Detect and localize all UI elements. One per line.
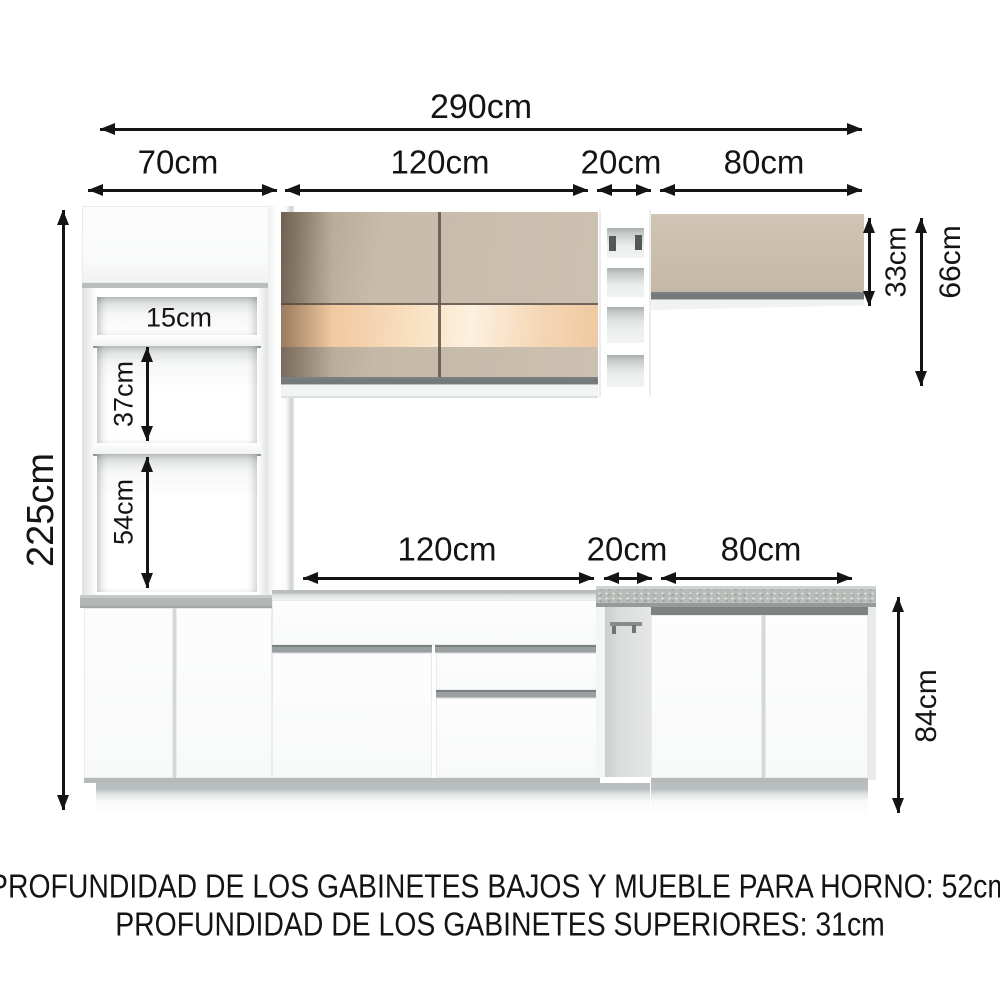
dim-arrow-20-top	[597, 189, 651, 192]
dim-label-80-top: 80cm	[724, 146, 805, 179]
base-open-gap-20	[605, 605, 651, 777]
wall-cabinet-80-handle-strip	[651, 292, 864, 300]
wall-cabinet-80	[651, 214, 864, 310]
base-right-door-2	[765, 615, 868, 778]
wall-cabinet-120-left-shadow	[281, 212, 333, 377]
wall-cabinet-80-bottom-slab	[651, 300, 864, 310]
base-left-door-gap	[173, 608, 176, 778]
dim-arrow-20-mid	[604, 577, 652, 580]
base-mid	[272, 600, 600, 783]
dim-label-54: 54cm	[111, 479, 138, 545]
dim-label-20-top: 20cm	[581, 146, 662, 179]
base-mid-handle-strip-1	[272, 645, 600, 653]
upper-shelf-tower-20	[599, 210, 651, 397]
dim-arrow-120-mid	[303, 577, 594, 580]
towel-hook-left-icon	[612, 626, 616, 634]
dim-label-120-top: 120cm	[390, 146, 489, 179]
base-mid-handle-strip-2	[436, 690, 600, 698]
wall-cabinet-120-handle-strip	[281, 377, 598, 385]
kitchen-dimension-diagram: 290cm 70cm 120cm 20cm 80cm 225cm 15cm 37…	[0, 0, 1000, 1000]
dim-arrow-66	[920, 218, 923, 386]
tower-shelf-board-1	[93, 335, 261, 346]
base-mid-strip-gap	[432, 645, 435, 653]
dim-arrow-80-mid	[661, 577, 852, 580]
dim-arrow-total-width	[100, 128, 862, 131]
counter-mid	[272, 590, 600, 600]
base-right-side-face	[868, 607, 876, 780]
counter-left	[80, 595, 272, 608]
upper-shelf-opening-4	[607, 355, 644, 387]
base-right-door-gap	[762, 615, 765, 778]
dim-label-20-mid: 20cm	[587, 533, 668, 566]
dim-label-15: 15cm	[146, 305, 212, 332]
toe-kick-right	[651, 783, 868, 818]
hinge-left-icon	[609, 236, 616, 251]
upper-shelf-opening-2	[607, 268, 644, 297]
base-right	[651, 607, 868, 783]
dim-label-225: 225cm	[22, 453, 60, 567]
dim-label-total-width: 290cm	[430, 90, 532, 124]
dim-label-66: 66cm	[936, 225, 966, 298]
dim-arrow-70	[88, 189, 277, 192]
wall-cabinet-120-door-gap	[438, 212, 441, 377]
depth-note-base-cabinets: PROFUNDIDAD DE LOS GABINETES BAJOS Y MUE…	[0, 870, 1000, 903]
wall-cabinet-120-bottom-slab	[281, 385, 598, 398]
counter-right	[596, 586, 876, 607]
dim-label-37: 37cm	[111, 361, 138, 427]
dim-label-84: 84cm	[912, 669, 942, 742]
base-right-door-1	[651, 615, 762, 778]
dim-arrow-225	[62, 210, 65, 810]
tower-top-door-panel	[82, 206, 272, 283]
towel-hook-right-icon	[632, 625, 636, 633]
sink-front-panel	[272, 600, 600, 645]
dim-label-80-mid: 80cm	[721, 533, 802, 566]
hinge-right-icon	[635, 235, 642, 250]
wall-cabinet-120	[281, 212, 598, 398]
dim-arrow-120-top	[285, 189, 588, 192]
base-left	[84, 608, 272, 783]
base-gap-side-panel	[596, 605, 605, 777]
dim-label-70: 70cm	[138, 146, 219, 179]
dim-arrow-33	[868, 218, 871, 306]
dim-arrow-37	[146, 347, 149, 441]
dim-arrow-54	[146, 457, 149, 588]
base-mid-drawer-2	[436, 698, 600, 778]
upper-shelf-opening-3	[607, 307, 644, 343]
wall-cabinet-80-door	[651, 214, 864, 292]
depth-note-upper-cabinets: PROFUNDIDAD DE LOS GABINETES SUPERIORES:…	[115, 908, 885, 941]
dim-label-33: 33cm	[883, 227, 912, 298]
dim-label-120-mid: 120cm	[397, 533, 496, 566]
toe-kick-left	[96, 783, 272, 815]
base-mid-drawer-1	[436, 653, 600, 690]
base-left-door-1	[84, 608, 173, 778]
toe-kick-mid	[272, 783, 650, 818]
base-right-handle-strip	[651, 607, 868, 615]
dim-arrow-80-top	[660, 189, 862, 192]
base-left-door-2	[176, 608, 272, 778]
base-mid-door	[272, 653, 432, 778]
tower-shelf-board-2	[93, 443, 261, 454]
dim-arrow-84	[897, 597, 900, 813]
